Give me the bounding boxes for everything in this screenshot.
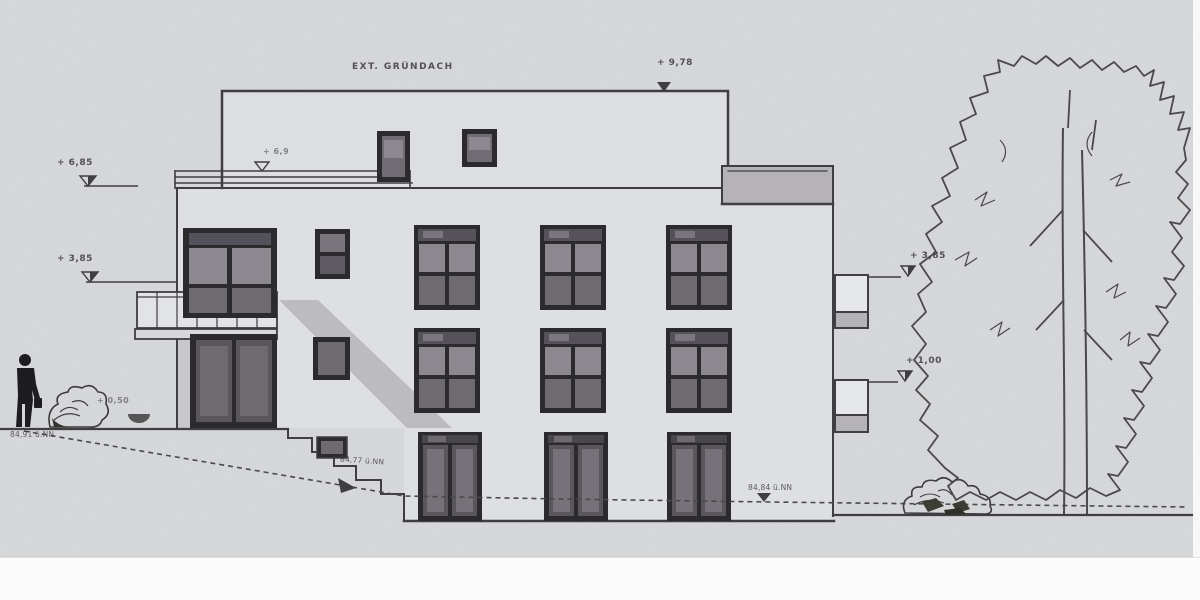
left-upper-window: [183, 228, 277, 318]
elevation-label-nn-left: 84,91 ü.NN: [10, 430, 54, 439]
window-r1c2: [540, 225, 606, 310]
right-window-box-upper: [835, 275, 868, 328]
elevation-label-left-upper: + 6,85: [57, 158, 93, 168]
window-r2c1: [414, 328, 480, 413]
penthouse-window-2: [462, 129, 497, 167]
drawing-canvas: [0, 0, 1200, 600]
left-ground-door: [190, 334, 277, 428]
paper-margin-right: [1193, 0, 1200, 557]
penthouse-window-1: [377, 131, 410, 182]
elevation-label-roof: + 9,78: [657, 58, 693, 68]
elevation-label-right-upper: + 3,85: [910, 251, 946, 261]
roof-note-label: EXT. GRÜNDACH: [352, 62, 454, 72]
elevation-label-left-mid: + 3,85: [57, 254, 93, 264]
roof-slab: [722, 166, 833, 204]
elevation-label-nn-bottom: 84,84 ü.NN: [748, 483, 792, 492]
elevation-label-right-lower: + 1,00: [906, 356, 942, 366]
window-r1c1: [414, 225, 480, 310]
elevation-label-parapet: + 6,9: [263, 147, 289, 156]
door-c3: [667, 432, 731, 521]
elevation-label-ground: + 0,50: [97, 396, 129, 405]
door-c2: [544, 432, 608, 521]
wall-shadow: [177, 334, 190, 428]
right-window-box-lower: [835, 380, 868, 432]
elevation-drawing-sheet: EXT. GRÜNDACH + 9,78 + 6,85 + 6,9 + 3,85…: [0, 0, 1200, 600]
window-r2c2: [540, 328, 606, 413]
window-r1c3: [666, 225, 732, 310]
stair-window-lower: [313, 337, 350, 380]
window-r2c3: [666, 328, 732, 413]
stair-window-upper: [315, 229, 350, 279]
paper-margin-bottom: [0, 557, 1200, 600]
door-c1: [418, 432, 482, 521]
